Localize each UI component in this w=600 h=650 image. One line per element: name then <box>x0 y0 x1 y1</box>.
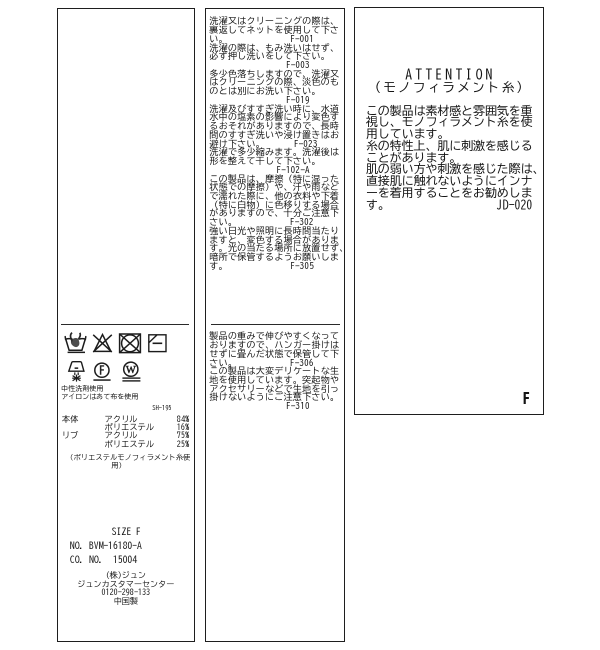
svg-text:F: F <box>99 365 105 376</box>
svg-text:W: W <box>125 365 135 375</box>
